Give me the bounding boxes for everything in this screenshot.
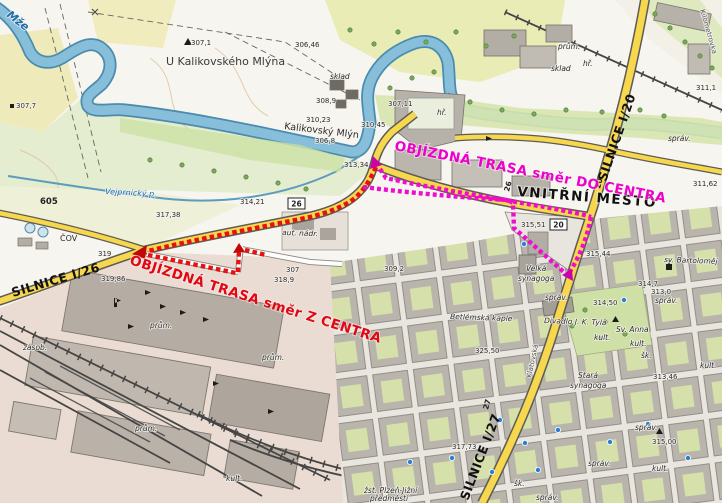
elevation-label: 307 [286, 266, 299, 274]
elevation-label: 313,34 [344, 161, 369, 169]
elevation-label: 314,50 [593, 299, 618, 307]
elevation-label: 306,46 [295, 41, 320, 49]
area-label: prům. [261, 353, 284, 362]
area-label: správ. [545, 293, 568, 302]
area-label: zásob. [22, 343, 47, 352]
synagogue-label: synagoga [518, 274, 555, 283]
area-label: správ. [536, 493, 559, 502]
church-label: Sv. Anna [616, 325, 649, 334]
area-label: sklad [330, 72, 350, 81]
synagogue-label: synagoga [570, 381, 607, 390]
elevation-label: 307,11 [388, 100, 413, 108]
area-label: hř. [437, 108, 447, 117]
station-label: předměstí [369, 494, 409, 503]
elevation-label: 315,51 [521, 221, 546, 229]
area-label: kult. [700, 361, 717, 370]
area-label: správ. [588, 459, 611, 468]
bench-mark-icon [10, 104, 14, 108]
elevation-label: 319 [98, 250, 111, 258]
synagogue-label: Velká [526, 264, 547, 273]
topographic-map: 26 20 26 20 27 605 307,1 306,46 307,7 30… [0, 0, 722, 503]
elevation-label: 307,1 [191, 39, 211, 47]
elevation-label: 317,73 [452, 443, 477, 451]
area-label: kult. [652, 464, 669, 473]
elevation-label: 307,7 [16, 102, 36, 110]
elevation-label: 317,38 [156, 211, 181, 219]
area-label: šk. [514, 479, 525, 488]
elevation-label: 313,0 [651, 288, 671, 296]
elevation-label: 314,21 [240, 198, 265, 206]
area-label: správ. [635, 423, 658, 432]
elevation-label: 308,9 [316, 97, 336, 105]
elevation-label: 313,46 [653, 373, 678, 381]
area-label: hř. [583, 59, 593, 68]
synagogue-label: Stará [578, 371, 598, 380]
area-label: šk. [641, 351, 652, 360]
area-label: prům. [149, 321, 172, 330]
elevation-label: 309,2 [384, 265, 404, 273]
map-canvas: 26 20 26 20 27 605 307,1 306,46 307,7 30… [0, 0, 722, 503]
area-label: prům. [557, 42, 580, 51]
road-num-605: 605 [40, 197, 58, 207]
area-label: kult. [594, 333, 611, 342]
elevation-label: 319,86 [101, 275, 126, 283]
elevation-label: 310,23 [306, 116, 331, 124]
area-label: správ. [655, 296, 678, 305]
elevation-label: 306,8 [315, 137, 335, 145]
area-label: prům. [134, 424, 157, 433]
elevation-label: 311,1 [696, 84, 716, 92]
area-label: kult. [630, 339, 647, 348]
shield-20: 20 [553, 221, 563, 230]
elevation-label: 325,50 [475, 347, 500, 355]
cathedral-label: sv. Bartoloměj [664, 255, 719, 266]
area-label: kult. [226, 474, 243, 483]
elevation-label: 315,44 [586, 250, 611, 258]
elevation-label: 315,00 [652, 438, 677, 446]
elevation-label: 314,7 [638, 280, 658, 288]
shield-26: 26 [291, 200, 301, 209]
area-label: sklad [551, 64, 571, 73]
area-label: správ. [668, 134, 691, 143]
elevation-label: 311,62 [693, 180, 718, 188]
elevation-label: 318,9 [274, 276, 294, 284]
cov-label: ČOV [60, 232, 78, 243]
locality-label: U Kalikovského Mlýna [166, 55, 285, 68]
bus-station-label: aut. nádr. [282, 228, 318, 238]
elevation-label: 310,45 [361, 121, 386, 129]
